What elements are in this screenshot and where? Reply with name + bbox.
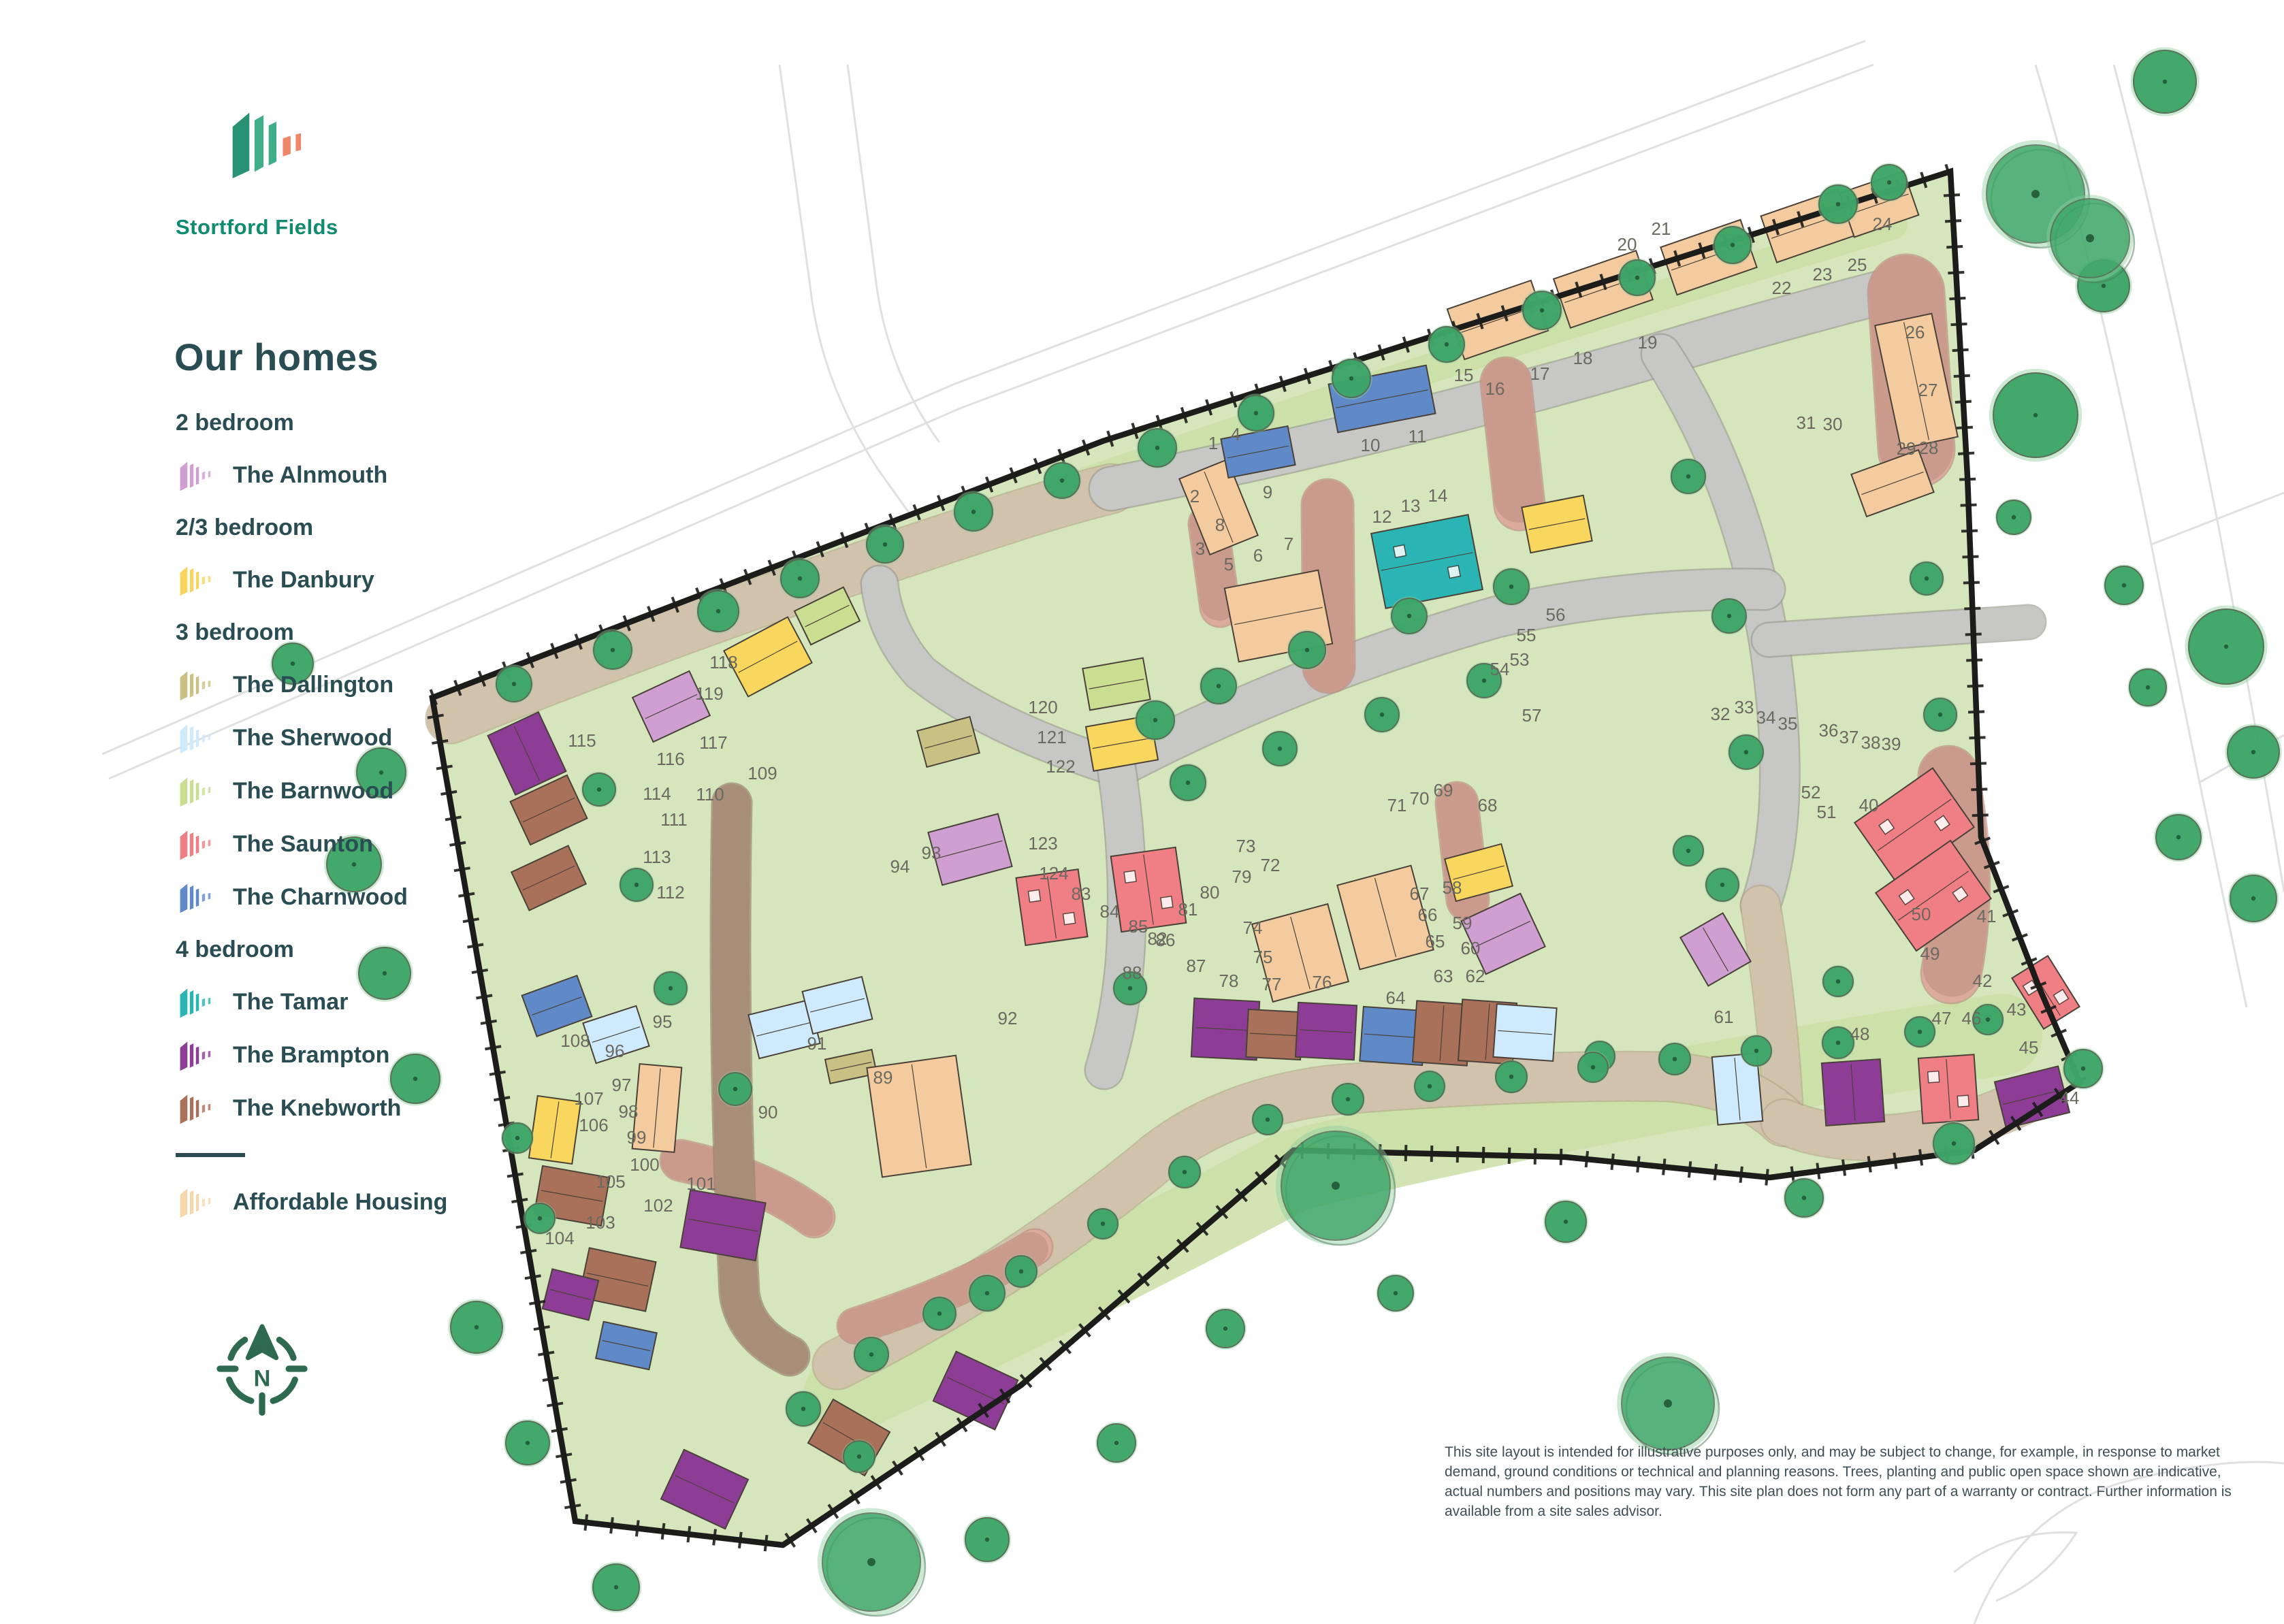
plot-number: 79 bbox=[1232, 866, 1252, 887]
plot-number: 22 bbox=[1772, 278, 1792, 298]
tree-icon bbox=[653, 971, 689, 1007]
outer-road bbox=[779, 65, 912, 517]
plot-number: 7 bbox=[1284, 534, 1293, 554]
plot-number: 8 bbox=[1215, 515, 1225, 535]
tree-icon bbox=[963, 1516, 1011, 1563]
plot-number: 65 bbox=[1426, 931, 1445, 952]
plot-number: 43 bbox=[2007, 999, 2027, 1020]
legend-item-the-knebworth: The Knebworth bbox=[176, 1082, 496, 1135]
tree-icon bbox=[1134, 699, 1176, 741]
plot-number: 109 bbox=[747, 763, 777, 783]
house-bra bbox=[1296, 1003, 1357, 1060]
outer-road bbox=[1954, 1532, 2076, 1601]
house-she bbox=[1493, 1004, 1556, 1061]
plot-number: 58 bbox=[1443, 877, 1462, 898]
site-area bbox=[432, 172, 2080, 1545]
plot-number: 83 bbox=[1072, 883, 1091, 904]
site-plan-page: 1234567891011121314151617181920212223242… bbox=[0, 0, 2284, 1624]
tree-icon bbox=[504, 1419, 551, 1467]
tree-icon bbox=[1869, 163, 1908, 201]
plot-number: 81 bbox=[1178, 899, 1198, 920]
plot-number: 92 bbox=[998, 1008, 1018, 1028]
legend-item-affordable-housing: Affordable Housing bbox=[176, 1175, 496, 1229]
tree-icon bbox=[1740, 1035, 1773, 1067]
tree-icon bbox=[1931, 1121, 1976, 1166]
plot-number: 29 bbox=[1897, 438, 1916, 459]
tree-icon bbox=[1577, 1051, 1609, 1084]
legend-item-label: The Saunton bbox=[233, 831, 373, 858]
tree-icon bbox=[2130, 47, 2199, 116]
plot-number: 48 bbox=[1850, 1024, 1870, 1044]
plot-number: 111 bbox=[660, 809, 688, 830]
tree-icon bbox=[591, 1562, 642, 1613]
tree-icon bbox=[1492, 567, 1530, 606]
tree-icon bbox=[1712, 225, 1752, 265]
legend-item-the-brampton: The Brampton bbox=[176, 1028, 496, 1082]
plot-number: 115 bbox=[568, 730, 596, 751]
plot-number: 50 bbox=[1912, 904, 1931, 924]
plot-number: 26 bbox=[1905, 322, 1925, 342]
tree-icon bbox=[2225, 724, 2282, 781]
plot-number: 84 bbox=[1100, 901, 1120, 922]
plot-number: 89 bbox=[873, 1067, 893, 1088]
tree-icon bbox=[1376, 1273, 1415, 1312]
compass-north-icon: N bbox=[215, 1322, 309, 1416]
tree-icon bbox=[967, 1273, 1006, 1312]
plot-number: 38 bbox=[1861, 732, 1881, 753]
road-paving-texture bbox=[1506, 383, 1519, 505]
tree-icon bbox=[1783, 1177, 1825, 1219]
large-tree-icon bbox=[1617, 1352, 1719, 1455]
plot-number: 16 bbox=[1485, 378, 1505, 399]
plot-number: 24 bbox=[1873, 214, 1893, 234]
plot-number: 88 bbox=[1123, 962, 1142, 983]
homes-legend: 2 bedroom The Alnmouth2/3 bedroom The Da… bbox=[176, 397, 496, 1229]
plot-number: 72 bbox=[1261, 855, 1281, 875]
plot-number: 44 bbox=[2060, 1088, 2080, 1108]
tree-icon bbox=[2062, 1048, 2104, 1090]
legend-item-the-danbury: The Danbury bbox=[176, 553, 496, 606]
plot-number: 28 bbox=[1919, 438, 1939, 458]
plot-number: 59 bbox=[1453, 913, 1473, 933]
plot-number: 64 bbox=[1386, 988, 1406, 1008]
plot-number: 66 bbox=[1418, 905, 1438, 925]
stortford-fields-logo-icon bbox=[229, 103, 301, 181]
tree-icon bbox=[1521, 289, 1563, 331]
plot-number: 68 bbox=[1478, 795, 1498, 815]
outer-road bbox=[848, 65, 939, 442]
tree-icon bbox=[1168, 1155, 1202, 1190]
house-dan bbox=[529, 1096, 581, 1164]
plot-number: 21 bbox=[1652, 218, 1671, 239]
legend-item-label: The Tamar bbox=[233, 989, 348, 1016]
house-type-icon bbox=[176, 774, 214, 808]
house-type-icon bbox=[176, 668, 214, 702]
legend-item-label: Affordable Housing bbox=[233, 1189, 447, 1216]
tree-icon bbox=[952, 491, 995, 533]
plot-number: 119 bbox=[695, 683, 723, 704]
plot-number: 36 bbox=[1819, 720, 1839, 741]
plot-number: 41 bbox=[1977, 906, 1997, 926]
plot-number: 106 bbox=[579, 1115, 608, 1135]
plot-number: 93 bbox=[922, 843, 942, 863]
house-type-icon bbox=[176, 458, 214, 492]
legend-item-the-alnmouth: The Alnmouth bbox=[176, 449, 496, 502]
plot-number: 117 bbox=[699, 732, 727, 753]
outer-road bbox=[2151, 493, 2284, 545]
tree-icon bbox=[1087, 1207, 1119, 1240]
plot-number: 124 bbox=[1039, 863, 1068, 883]
brand-name: Stortford Fields bbox=[176, 215, 338, 240]
plot-number: 90 bbox=[758, 1102, 778, 1122]
plot-number: 35 bbox=[1778, 713, 1798, 734]
plot-number: 45 bbox=[2019, 1037, 2039, 1058]
tree-icon bbox=[1042, 461, 1081, 500]
plot-number: 103 bbox=[585, 1212, 615, 1233]
plot-number: 9 bbox=[1263, 482, 1272, 502]
plot-number: 56 bbox=[1546, 604, 1566, 625]
plot-number: 73 bbox=[1236, 836, 1256, 856]
tree-icon bbox=[619, 867, 655, 903]
legend-group-heading: 3 bedroom bbox=[176, 606, 496, 658]
plot-number: 31 bbox=[1797, 412, 1816, 433]
legend-group-heading: 2/3 bedroom bbox=[176, 502, 496, 553]
tree-icon bbox=[1287, 630, 1327, 670]
tree-icon bbox=[1330, 357, 1372, 400]
plot-number: 4 bbox=[1231, 424, 1240, 444]
tree-icon bbox=[448, 1299, 505, 1356]
house-type-icon bbox=[176, 827, 214, 861]
legend-item-label: The Knebworth bbox=[233, 1095, 401, 1122]
plot-number: 116 bbox=[656, 749, 684, 769]
tree-icon bbox=[922, 1296, 958, 1332]
tree-icon bbox=[1923, 697, 1959, 733]
house-bra bbox=[1822, 1059, 1884, 1126]
disclaimer-text: This site layout is intended for illustr… bbox=[1445, 1443, 2262, 1522]
plot-number: 86 bbox=[1156, 930, 1176, 950]
house-sau bbox=[1111, 847, 1187, 932]
house-bra bbox=[680, 1190, 765, 1261]
plot-number: 10 bbox=[1361, 435, 1381, 455]
legend-item-label: The Brampton bbox=[233, 1042, 389, 1069]
tree-icon bbox=[718, 1071, 754, 1107]
tree-icon bbox=[842, 1440, 877, 1474]
gray-road bbox=[1769, 622, 2029, 640]
tree-icon bbox=[1909, 561, 1945, 597]
plot-number: 2 bbox=[1190, 486, 1200, 506]
legend-item-label: The Danbury bbox=[233, 567, 374, 594]
tree-icon bbox=[1251, 1103, 1284, 1136]
legend-title: Our homes bbox=[174, 335, 379, 379]
tree-icon bbox=[1658, 1042, 1692, 1077]
tree-icon bbox=[1711, 598, 1748, 635]
plot-number: 98 bbox=[619, 1101, 639, 1122]
plot-number: 30 bbox=[1823, 414, 1843, 434]
tree-icon bbox=[779, 557, 821, 600]
plot-number: 51 bbox=[1817, 802, 1837, 822]
legend-item-label: The Alnmouth bbox=[233, 462, 387, 489]
plot-number: 12 bbox=[1372, 506, 1392, 527]
legend-item-the-charnwood: The Charnwood bbox=[176, 871, 496, 924]
tree-icon bbox=[1331, 1082, 1366, 1117]
legend-item-label: The Dallington bbox=[233, 672, 393, 698]
tree-icon bbox=[1817, 183, 1859, 225]
tree-icon bbox=[1236, 393, 1275, 432]
tree-icon bbox=[1199, 666, 1238, 705]
tree-icon bbox=[785, 1391, 822, 1428]
tree-icon bbox=[1261, 730, 1299, 768]
house-type-icon bbox=[176, 985, 214, 1019]
tree-icon bbox=[1136, 427, 1178, 469]
plot-number: 101 bbox=[686, 1173, 715, 1194]
tree-icon bbox=[494, 664, 533, 703]
tree-icon bbox=[696, 589, 741, 634]
plot-number: 67 bbox=[1410, 883, 1430, 904]
legend-item-label: The Charnwood bbox=[233, 884, 408, 911]
plot-number: 120 bbox=[1028, 697, 1057, 717]
plot-number: 112 bbox=[656, 882, 684, 903]
legend-item-the-dallington: The Dallington bbox=[176, 658, 496, 711]
plot-number: 71 bbox=[1387, 795, 1407, 815]
plot-number: 52 bbox=[1801, 782, 1821, 802]
compass-n-label: N bbox=[254, 1365, 271, 1391]
plot-number: 91 bbox=[807, 1033, 827, 1054]
plot-number: 105 bbox=[596, 1171, 625, 1192]
plot-number: 42 bbox=[1973, 971, 1993, 991]
plot-number: 69 bbox=[1434, 780, 1453, 800]
legend-item-label: The Barnwood bbox=[233, 778, 393, 805]
plot-number: 96 bbox=[605, 1041, 625, 1061]
house-type-icon bbox=[176, 880, 214, 914]
legend-divider bbox=[176, 1135, 496, 1175]
tree-icon bbox=[1670, 458, 1707, 496]
plot-number: 122 bbox=[1046, 756, 1075, 777]
plot-number: 40 bbox=[1859, 795, 1879, 815]
plot-number: 20 bbox=[1618, 234, 1637, 255]
tree-icon bbox=[1427, 325, 1466, 363]
tree-icon bbox=[1822, 965, 1854, 998]
tree-icon bbox=[1494, 1060, 1529, 1094]
plot-number: 18 bbox=[1573, 348, 1593, 368]
plot-number: 102 bbox=[643, 1195, 673, 1216]
house-type-icon bbox=[176, 721, 214, 755]
plot-number: 118 bbox=[709, 652, 737, 672]
plot-number: 99 bbox=[627, 1127, 647, 1148]
house-type-icon bbox=[176, 1185, 214, 1219]
plot-number: 97 bbox=[612, 1075, 632, 1095]
plot-number: 94 bbox=[890, 856, 910, 877]
plot-number: 76 bbox=[1313, 972, 1332, 992]
tree-icon bbox=[2154, 813, 2204, 862]
legend-item-the-barnwood: The Barnwood bbox=[176, 764, 496, 817]
tree-icon bbox=[853, 1336, 890, 1374]
plot-number: 75 bbox=[1253, 947, 1273, 967]
tree-icon bbox=[1364, 696, 1401, 734]
tree-icon bbox=[501, 1122, 534, 1154]
plot-number: 39 bbox=[1882, 734, 1901, 754]
tree-icon bbox=[1204, 1308, 1246, 1350]
plot-number: 61 bbox=[1714, 1007, 1734, 1027]
plot-number: 49 bbox=[1920, 943, 1940, 964]
tree-icon bbox=[1004, 1254, 1039, 1289]
legend-item-the-sherwood: The Sherwood bbox=[176, 711, 496, 764]
tree-icon bbox=[1728, 734, 1765, 771]
plot-number: 33 bbox=[1735, 697, 1754, 717]
plot-number: 14 bbox=[1428, 485, 1448, 506]
plot-number: 108 bbox=[560, 1030, 590, 1051]
tree-icon bbox=[1618, 258, 1656, 297]
large-tree-icon bbox=[818, 1508, 925, 1616]
plot-number: 123 bbox=[1028, 833, 1057, 854]
tree-icon bbox=[2103, 564, 2145, 606]
plot-number: 1 bbox=[1208, 433, 1218, 453]
plot-number: 19 bbox=[1638, 332, 1658, 353]
plot-number: 113 bbox=[643, 847, 671, 867]
house-type-icon bbox=[176, 1038, 214, 1072]
tree-icon bbox=[1168, 763, 1207, 802]
legend-item-label: The Sherwood bbox=[233, 725, 392, 751]
plot-number: 5 bbox=[1224, 554, 1234, 574]
plot-number: 37 bbox=[1839, 727, 1859, 747]
tree-icon bbox=[1543, 1199, 1588, 1244]
plot-number: 104 bbox=[545, 1228, 574, 1248]
tree-icon bbox=[1389, 596, 1428, 635]
large-tree-icon bbox=[1276, 1126, 1396, 1246]
tree-icon bbox=[2185, 606, 2268, 688]
plot-number: 110 bbox=[696, 784, 724, 805]
plot-number: 23 bbox=[1813, 264, 1833, 285]
plot-number: 107 bbox=[574, 1088, 603, 1109]
tree-icon bbox=[1095, 1422, 1138, 1464]
plot-number: 78 bbox=[1219, 971, 1239, 991]
plot-number: 95 bbox=[653, 1011, 673, 1032]
plot-number: 54 bbox=[1490, 659, 1510, 679]
legend-group-heading: 4 bedroom bbox=[176, 924, 496, 975]
tree-icon bbox=[1989, 369, 2082, 461]
plot-number: 3 bbox=[1195, 538, 1205, 559]
tree-icon bbox=[1672, 834, 1705, 867]
plot-number: 85 bbox=[1129, 916, 1148, 937]
plot-number: 70 bbox=[1410, 788, 1430, 809]
plot-number: 32 bbox=[1711, 704, 1731, 724]
tree-icon bbox=[581, 772, 617, 808]
plot-number: 57 bbox=[1522, 705, 1542, 726]
tree-icon bbox=[2228, 873, 2279, 924]
plot-number: 114 bbox=[643, 783, 671, 804]
tree-icon bbox=[1705, 867, 1741, 903]
tree-icon bbox=[1413, 1070, 1446, 1103]
plot-number: 46 bbox=[1962, 1008, 1982, 1028]
legend-item-the-saunton: The Saunton bbox=[176, 817, 496, 871]
plot-number: 13 bbox=[1401, 496, 1421, 516]
plot-number: 27 bbox=[1918, 380, 1938, 400]
tree-icon bbox=[1995, 499, 2033, 536]
plot-number: 80 bbox=[1200, 882, 1220, 903]
plot-number: 87 bbox=[1187, 956, 1206, 976]
legend-item-the-tamar: The Tamar bbox=[176, 975, 496, 1028]
plot-number: 62 bbox=[1466, 966, 1485, 986]
house-sau bbox=[1918, 1054, 1978, 1123]
plot-number: 53 bbox=[1510, 649, 1530, 670]
plot-number: 77 bbox=[1262, 974, 1282, 994]
plot-number: 63 bbox=[1434, 966, 1453, 986]
plot-number: 25 bbox=[1848, 255, 1867, 275]
plot-number: 60 bbox=[1461, 938, 1481, 958]
tree-icon bbox=[592, 629, 634, 671]
plot-number: 15 bbox=[1454, 365, 1474, 385]
plot-number: 34 bbox=[1756, 707, 1776, 728]
plot-number: 74 bbox=[1243, 917, 1263, 938]
plot-number: 100 bbox=[630, 1154, 659, 1175]
tree-icon bbox=[865, 524, 905, 564]
plot-number: 55 bbox=[1517, 625, 1537, 645]
house-type-icon bbox=[176, 1091, 214, 1125]
house-kne bbox=[1246, 1009, 1303, 1060]
house-type-icon bbox=[176, 563, 214, 597]
tree-icon bbox=[2127, 667, 2168, 707]
plot-number: 47 bbox=[1932, 1008, 1952, 1028]
plot-number: 121 bbox=[1037, 727, 1066, 747]
plot-number: 11 bbox=[1409, 426, 1427, 446]
plot-number: 6 bbox=[1253, 545, 1263, 566]
legend-group-heading: 2 bedroom bbox=[176, 397, 496, 449]
plot-number: 17 bbox=[1530, 363, 1550, 384]
